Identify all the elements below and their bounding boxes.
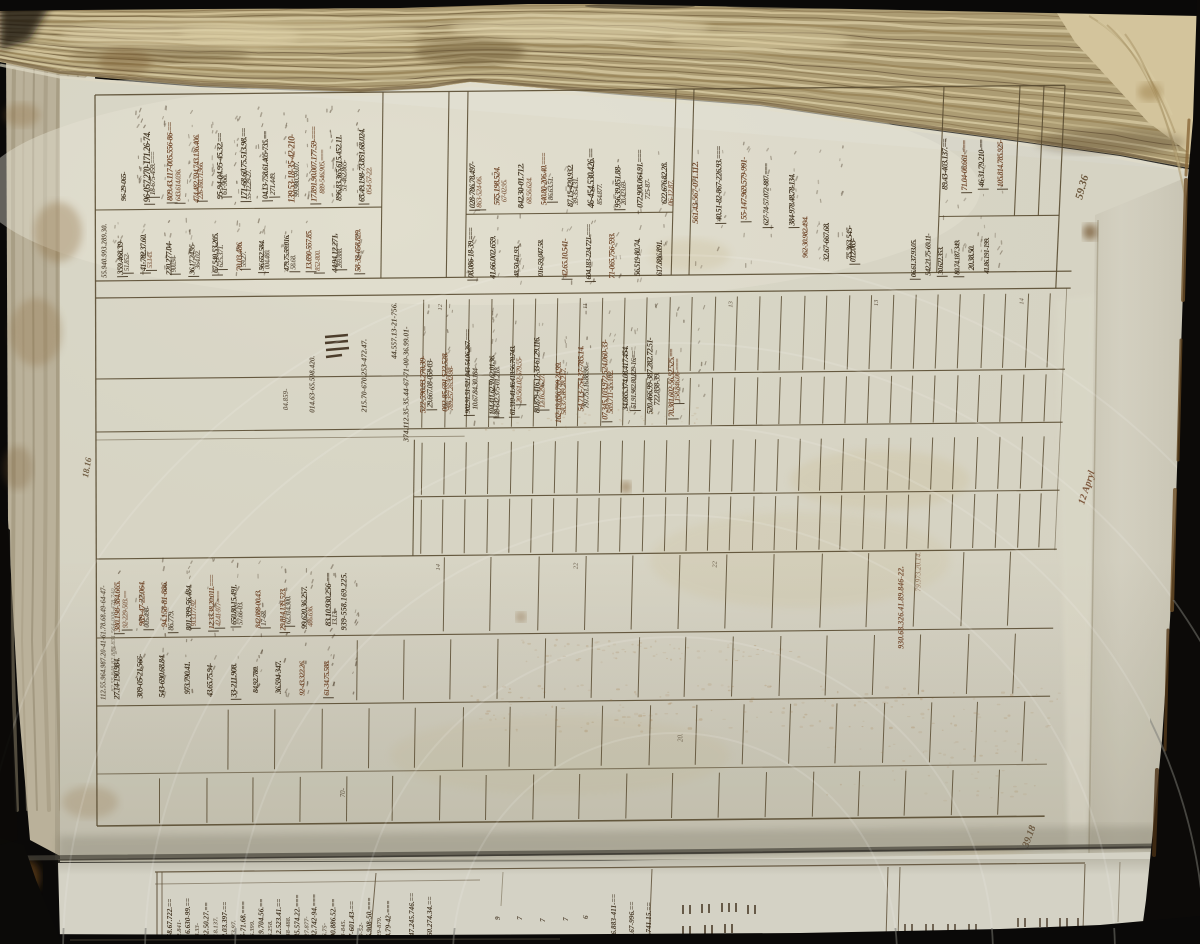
svg-text:62.314.300.: 62.314.300. — [283, 595, 292, 624]
svg-text:269.888.: 269.888. — [336, 247, 344, 269]
svg-text:92-43.322.26.: 92-43.322.26. — [297, 660, 306, 696]
svg-text:13: 13 — [728, 300, 735, 307]
svg-text:51-462.865-: 51-462.865- — [340, 159, 349, 191]
svg-text:58.375.89.28.217.: 58.375.89.28.217. — [559, 368, 568, 415]
svg-text:012.063-: 012.063- — [848, 238, 857, 262]
svg-text:55.940.993.289.30.: 55.940.993.289.30. — [100, 223, 108, 278]
svg-text:589.711-55.102.: 589.711-55.102. — [606, 370, 615, 414]
svg-text:112.55.964.987.20-41-61.78.68.: 112.55.964.987.20-41-61.78.68.49-64-47- — [100, 585, 107, 700]
svg-text:55-12.29-27.: 55-12.29-27. — [245, 169, 253, 199]
svg-text:92-229-503.==: 92-229-503.== — [121, 591, 130, 628]
svg-text:973.790.41.: 973.790.41. — [183, 661, 192, 694]
svg-text:7: 7 — [539, 918, 547, 922]
svg-text:32.67-667.68.: 32.67-667.68. — [822, 222, 831, 262]
svg-text:41.86.191-199.: 41.86.191-199. — [982, 237, 991, 275]
svg-text:852-800.: 852-800. — [314, 250, 322, 271]
svg-text:39-354.31.: 39-354.31. — [571, 177, 580, 206]
svg-text:912.523.41.==: 912.523.41.== — [275, 899, 283, 941]
svg-text:59.27.: 59.27. — [239, 251, 248, 267]
svg-text:46-31.79.210-==: 46-31.79.210-== — [977, 139, 986, 188]
svg-text:40.51-82-867-226.93.===: 40.51-82-867-226.93.=== — [713, 146, 723, 223]
svg-text:060.274.34.==: 060.274.34.== — [425, 896, 434, 940]
svg-text:41.66.002.659.: 41.66.002.659. — [488, 235, 498, 280]
svg-text:004.480.: 004.480. — [265, 249, 272, 269]
svg-text:863-524-06.: 863-524-06. — [474, 176, 483, 208]
svg-text:900.94-: 900.94- — [171, 254, 178, 272]
svg-text:13: 13 — [873, 299, 880, 306]
svg-text:14: 14 — [435, 563, 442, 570]
svg-text:43.65.75.94-: 43.65.75.94- — [206, 662, 215, 697]
svg-text:374.112.35-35.44-67-71-00-36.9: 374.112.35-35.44-67-71-00-36.99.01- — [402, 326, 411, 443]
svg-text:06.61.37.93.05.: 06.61.37.93.05. — [909, 239, 918, 278]
svg-text:22: 22 — [711, 560, 718, 567]
svg-text:20.: 20. — [676, 733, 684, 742]
svg-text:542.21.75-69.11-: 542.21.75-69.11- — [924, 233, 933, 276]
svg-text:643.614.036.: 643.614.036. — [174, 168, 183, 201]
svg-text:29.667.08-058-03-: 29.667.08-058-03- — [425, 358, 434, 409]
svg-text:625.371.: 625.371. — [216, 244, 225, 267]
svg-text:30.622.353.: 30.622.353. — [937, 246, 945, 275]
svg-text:561.43-567-071.112.: 561.43-567-071.112. — [690, 161, 700, 224]
svg-text:939-558.169.225.: 939-558.169.225. — [340, 572, 349, 630]
svg-text:271.449.: 271.449. — [268, 172, 277, 196]
svg-text:486.636.: 486.636. — [306, 605, 315, 628]
svg-text:12.16.296.27.: 12.16.296.27. — [538, 374, 547, 408]
svg-text:99.980.59.07.: 99.980.59.07. — [292, 161, 301, 197]
svg-text:42.65.10.541-: 42.65.10.541- — [561, 238, 570, 278]
svg-text:44.557.13-21-756.: 44.557.13-21-756. — [390, 302, 399, 359]
svg-text:70-: 70- — [339, 787, 347, 797]
svg-text:014.63-65.598.420.: 014.63-65.598.420. — [307, 355, 316, 412]
svg-text:384-978.48.78-134.: 384-978.48.78-134. — [788, 173, 797, 226]
svg-text:42.41-977-===: 42.41-977-=== — [214, 591, 222, 628]
svg-text:604.183-224.721-===: 604.183-224.721-=== — [584, 224, 593, 279]
svg-text:347.245.746.==: 347.245.746.== — [407, 893, 416, 941]
svg-text:12: 12 — [437, 303, 444, 310]
svg-text:80.74.187.349.: 80.74.187.349. — [953, 239, 961, 275]
svg-text:67-02.95.: 67-02.95. — [499, 179, 508, 202]
svg-text:06-12.87.: 06-12.87. — [666, 180, 675, 206]
svg-text:7: 7 — [562, 917, 570, 921]
svg-text:889-546.905.===: 889-546.905.=== — [318, 150, 327, 194]
svg-text:82.55.848.82.884.831.564-008-4: 82.55.848.82.884.831.564-008-478.740. — [110, 586, 117, 691]
svg-text:617.886.891.: 617.886.891. — [655, 240, 664, 276]
svg-text:7: 7 — [516, 916, 524, 920]
svg-text:36.594-347.: 36.594-347. — [274, 660, 283, 695]
svg-text:57.66-03.: 57.66-03. — [236, 601, 245, 625]
svg-text:20.423.69-: 20.423.69- — [620, 179, 628, 206]
svg-text:20.38.50.: 20.38.50. — [967, 245, 976, 272]
svg-text:68.56.624.: 68.56.624. — [524, 177, 533, 204]
svg-text:9: 9 — [494, 916, 502, 920]
svg-text:215.70-670.253-472.47.: 215.70-670.253-472.47. — [360, 339, 369, 414]
svg-text:054-57-22.: 054-57-22. — [365, 167, 374, 195]
svg-text:6: 6 — [582, 915, 590, 919]
svg-text:10.67.84.30.184-: 10.67.84.30.184- — [471, 366, 480, 410]
svg-text:913.177.92.: 913.177.92. — [190, 599, 198, 627]
svg-text:89.43-403.137.==: 89.43-403.137.== — [941, 138, 950, 190]
svg-text:58.68.: 58.68. — [288, 254, 297, 269]
svg-text:96-29-065-: 96-29-065- — [119, 171, 128, 201]
svg-text:22: 22 — [573, 562, 580, 569]
svg-text:226-160.71.966.: 226-160.71.966. — [197, 161, 205, 200]
svg-text:71-065.756-593.: 71-065.756-593. — [608, 232, 617, 278]
svg-text:364.02.: 364.02. — [193, 250, 202, 271]
svg-text:61-968.: 61-968. — [220, 174, 229, 195]
svg-text:71.04-06.661-===: 71.04-06.661-=== — [960, 140, 969, 191]
svg-text:854.877.: 854.877. — [595, 183, 604, 205]
svg-text:51.852-: 51.852- — [122, 252, 131, 271]
svg-text:84.92.780.: 84.92.780. — [251, 666, 260, 693]
svg-text:13.690-557.85.: 13.690-557.85. — [305, 229, 314, 269]
svg-text:797.751.16.88.99.: 797.751.16.88.99. — [582, 365, 591, 408]
svg-text:04.859-: 04.859- — [282, 388, 290, 410]
svg-text:005.498-: 005.498- — [142, 605, 151, 628]
svg-text:14: 14 — [1019, 297, 1026, 304]
svg-text:725-87-: 725-87- — [643, 178, 652, 199]
svg-text:158.846.06-===: 158.846.06-=== — [673, 358, 682, 402]
svg-text:18-675-459.===: 18-675-459.=== — [148, 151, 157, 195]
svg-text:962-30.982.494.: 962-30.982.494. — [800, 216, 809, 258]
